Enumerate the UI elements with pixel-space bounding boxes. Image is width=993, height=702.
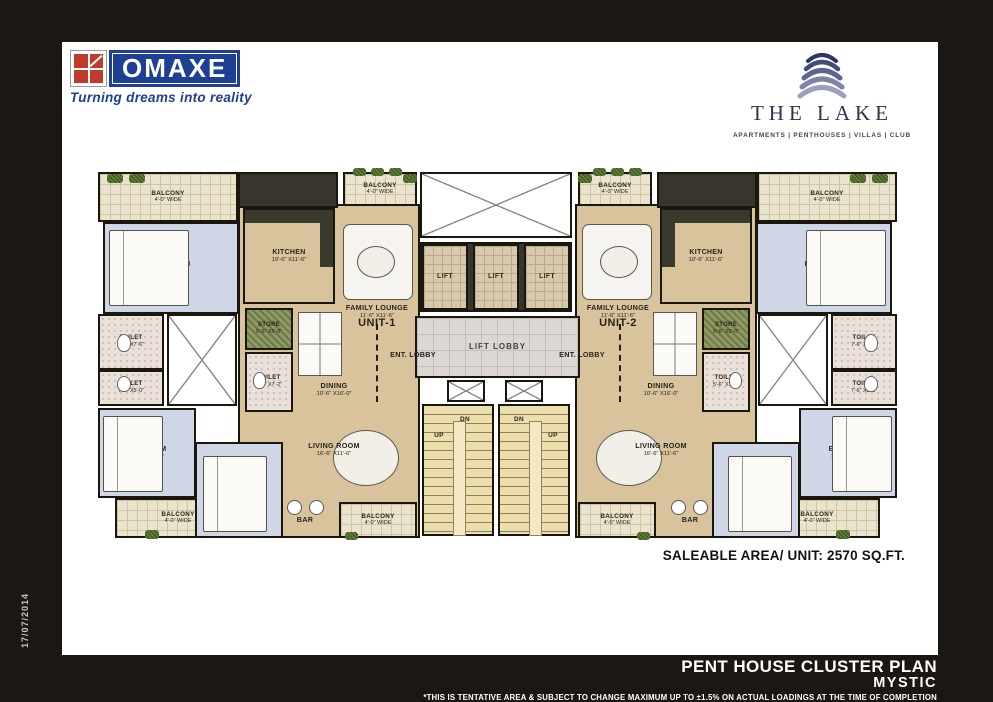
wc-furniture (864, 376, 878, 392)
omaxe-tagline: Turning dreams into reality (70, 90, 252, 105)
the-lake-logo: THE LAKE APARTMENTS | PENTHOUSES | VILLA… (732, 48, 912, 139)
plant-furniture (629, 168, 642, 176)
wc-furniture (729, 372, 742, 389)
omaxe-grid-icon (70, 50, 107, 87)
plant-furniture (371, 168, 384, 176)
lift-2: LIFT (473, 244, 519, 310)
oval-furniture (357, 246, 395, 278)
plan-sheet: OMAXE Turning dreams into reality THE LA… (62, 42, 938, 655)
staircase-2-up-label: UP (541, 430, 565, 442)
plant-furniture (129, 174, 145, 183)
plant-furniture (578, 174, 592, 183)
staircase-2-dn-label: DN (507, 414, 531, 426)
lift-1: LIFT (422, 244, 468, 310)
plant-furniture (872, 174, 888, 183)
plant-furniture (107, 174, 123, 183)
wc-furniture (117, 376, 131, 392)
wc-furniture (253, 372, 266, 389)
bed-furniture (806, 230, 886, 306)
unit2-ent-lobby-label: ENT. LOBBY (552, 348, 612, 362)
oval-furniture (600, 246, 638, 278)
unit1-ent-lobby-label: ENT. LOBBY (383, 348, 443, 362)
unit1-living-room-label: LIVING ROOM16'-6" X11'-6" (291, 440, 377, 460)
plant-furniture (637, 532, 650, 540)
unit2-living-room-label: LIVING ROOM16'-6" X11'-6" (618, 440, 704, 460)
plan-subtitle: MYSTIC (0, 676, 937, 692)
lift-3: LIFT (524, 244, 570, 310)
plan-title: PENT HOUSE CLUSTER PLAN (0, 658, 937, 676)
unit2-bar-label: BAR (670, 514, 710, 526)
black-frame: 17/07/2014 OMAXE Turning dreams into rea… (0, 0, 993, 702)
unit1-toilet-2: TOILET7'-6" X5'-0" (98, 370, 164, 406)
plant-furniture (145, 530, 159, 539)
omaxe-logo: OMAXE Turning dreams into reality (70, 50, 252, 105)
unit2-kitchen-top-wall (657, 172, 757, 208)
plant-furniture (850, 174, 866, 183)
unit1-bar-label: BAR (285, 514, 325, 526)
staircase-1-dn-label: DN (453, 414, 477, 426)
disclaimer: *THIS IS TENTATIVE AREA & SUBJECT TO CHA… (0, 693, 937, 702)
staircase-1-up-label: UP (427, 430, 451, 442)
bed-furniture (203, 456, 267, 532)
plant-furniture (345, 532, 358, 540)
bed-furniture (103, 416, 163, 492)
plant-furniture (403, 174, 417, 183)
footer-bar: PENT HOUSE CLUSTER PLAN MYSTIC *THIS IS … (0, 655, 993, 702)
floor-plan: BALCONY4'-0" WIDEBALCONY4'-0" WIDEBEDROO… (95, 168, 900, 542)
unit1-kitchen-top-wall (238, 172, 338, 208)
plant-furniture (593, 168, 606, 176)
wc-furniture (117, 334, 131, 352)
unit2-shaft (758, 314, 828, 406)
stool-furniture (693, 500, 708, 515)
lake-wordmark: THE LAKE (732, 101, 912, 126)
stool-furniture (287, 500, 302, 515)
unit2-label: UNIT-2 (586, 314, 650, 332)
plant-furniture (353, 168, 366, 176)
unit2-kitchen: KITCHEN10'-6" X11'-6" (660, 208, 752, 304)
omaxe-wordmark: OMAXE (109, 50, 240, 87)
lift-lobby: LIFT LOBBY (415, 316, 580, 378)
lake-tower-arcs-icon (790, 48, 854, 100)
unit1-kitchen: KITCHEN10'-6" X11'-6" (243, 208, 335, 304)
plant-furniture (389, 168, 402, 176)
bed-furniture (832, 416, 892, 492)
core-open-shaft (420, 172, 572, 238)
unit1-store: STORE5'-6" X5'-0" (245, 308, 293, 350)
bed-furniture (109, 230, 189, 306)
plant-furniture (836, 530, 850, 539)
saleable-area-note: SALEABLE AREA/ UNIT: 2570 SQ.FT. (663, 548, 905, 563)
stool-furniture (671, 500, 686, 515)
unit2-dining-label: DINING10'-6" X16'-0" (618, 380, 704, 400)
unit1-shaft (167, 314, 237, 406)
wc-furniture (864, 334, 878, 352)
stair-shaft-2 (505, 380, 543, 402)
date-stamp: 17/07/2014 (20, 593, 30, 648)
bed-furniture (728, 456, 792, 532)
unit1-toilet-1: TOILET7'-6" X7'-6" (98, 314, 164, 370)
unit2-toilet-3: TOILET5'-6" X7'-2" (702, 352, 750, 412)
stool-furniture (309, 500, 324, 515)
plant-furniture (611, 168, 624, 176)
lake-categories: APARTMENTS | PENTHOUSES | VILLAS | CLUB (732, 132, 912, 139)
unit1-dining-label: DINING10'-6" X16'-0" (291, 380, 377, 400)
unit2-store: STORE5'-6" X5'-0" (702, 308, 750, 350)
stair-shaft-1 (447, 380, 485, 402)
